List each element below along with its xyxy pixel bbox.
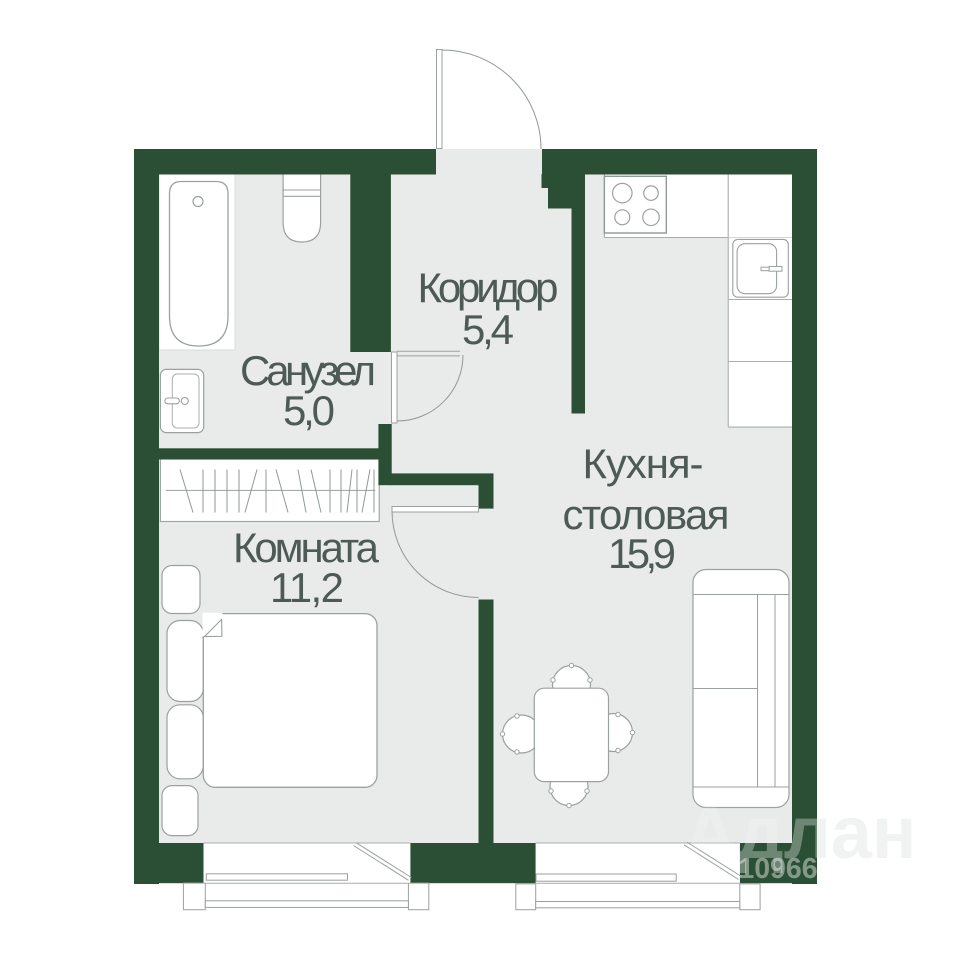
svg-text:15,9: 15,9: [608, 530, 676, 577]
svg-text:5,0: 5,0: [283, 387, 335, 434]
svg-text:Кухня-: Кухня-: [583, 440, 704, 487]
svg-text:11,2: 11,2: [270, 564, 344, 611]
svg-text:5,4: 5,4: [462, 306, 514, 353]
svg-text:Коридор: Коридор: [418, 264, 559, 311]
svg-text:10966: 10966: [738, 853, 817, 885]
